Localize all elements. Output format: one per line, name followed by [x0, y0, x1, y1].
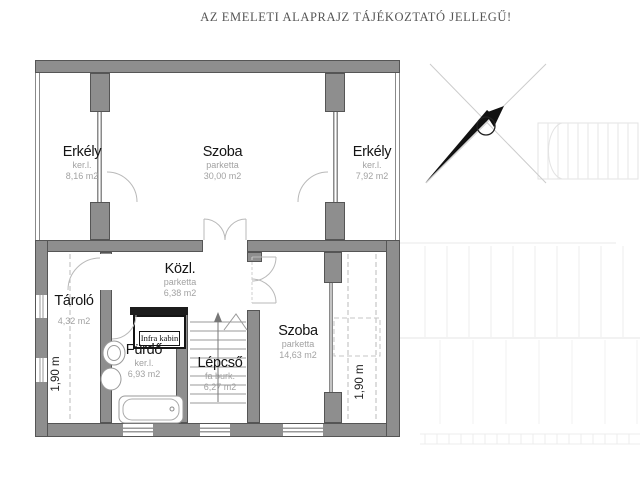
room-name: Tároló	[40, 294, 108, 309]
room-tarolo: Tároló 4,32 m2	[40, 294, 108, 327]
room-name: Fürdő	[108, 343, 180, 358]
room-finish: parketta	[260, 339, 336, 350]
room-area: 8,16 m2	[38, 171, 126, 182]
room-area: 6,93 m2	[108, 369, 180, 380]
room-name: Közl.	[134, 262, 226, 277]
room-area: 6,38 m2	[134, 288, 226, 299]
stairs-up-arrow-icon	[214, 312, 222, 322]
room-erkely-left: Erkély ker.l. 8,16 m2	[38, 145, 126, 182]
dimension-label-right: 1,90 m	[354, 352, 368, 412]
room-area: 4,32 m2	[40, 316, 108, 327]
plan-overlay	[0, 0, 640, 480]
room-szoba-top: Szoba parketta 30,00 m2	[170, 145, 275, 182]
room-area: 6,27 m2	[190, 382, 250, 393]
room-name: Erkély	[38, 145, 126, 160]
room-finish: ker.l.	[330, 160, 414, 171]
room-erkely-right: Erkély ker.l. 7,92 m2	[330, 145, 414, 182]
room-area: 14,63 m2	[260, 350, 336, 361]
room-area: 30,00 m2	[170, 171, 275, 182]
room-finish: parketta	[170, 160, 275, 171]
room-name: Lépcső	[190, 356, 250, 371]
room-finish: ker.l.	[38, 160, 126, 171]
room-finish: ker.l.	[108, 358, 180, 369]
room-name: Szoba	[170, 145, 275, 160]
dimension-label-left: 1,90 m	[50, 344, 64, 404]
room-furdo: Fürdő ker.l. 6,93 m2	[108, 343, 180, 380]
floor-plan-canvas: Infra kabin	[0, 0, 640, 480]
room-name: Szoba	[260, 324, 336, 339]
page-title: AZ EMELETI ALAPRAJZ TÁJÉKOZTATÓ JELLEGŰ!	[160, 10, 552, 25]
room-lepcso: Lépcső fa burk. 6,27 m2	[190, 356, 250, 393]
room-area: 7,92 m2	[330, 171, 414, 182]
room-name: Erkély	[330, 145, 414, 160]
room-szoba-lower: Szoba parketta 14,63 m2	[260, 324, 336, 361]
room-finish: fa burk.	[190, 371, 250, 382]
room-finish: parketta	[134, 277, 226, 288]
room-kozl: Közl. parketta 6,38 m2	[134, 262, 226, 299]
